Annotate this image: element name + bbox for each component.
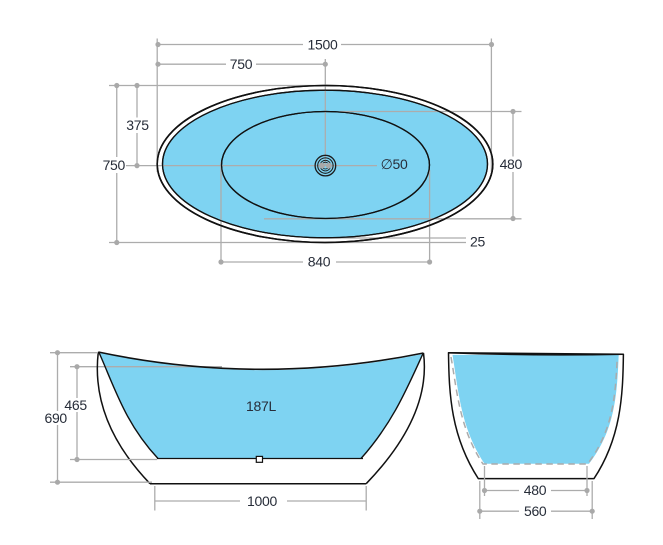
svg-text:480: 480 [500,156,523,172]
svg-text:465: 465 [64,397,87,413]
svg-text:187L: 187L [246,398,276,414]
svg-text:375: 375 [126,117,149,133]
svg-text:750: 750 [103,157,126,173]
svg-text:480: 480 [524,482,547,498]
svg-text:560: 560 [524,503,547,519]
svg-text:750: 750 [230,56,253,72]
svg-text:1500: 1500 [308,37,338,53]
svg-text:∅50: ∅50 [381,156,408,172]
svg-text:25: 25 [470,234,485,250]
svg-text:840: 840 [308,254,331,270]
svg-text:1000: 1000 [247,493,277,509]
